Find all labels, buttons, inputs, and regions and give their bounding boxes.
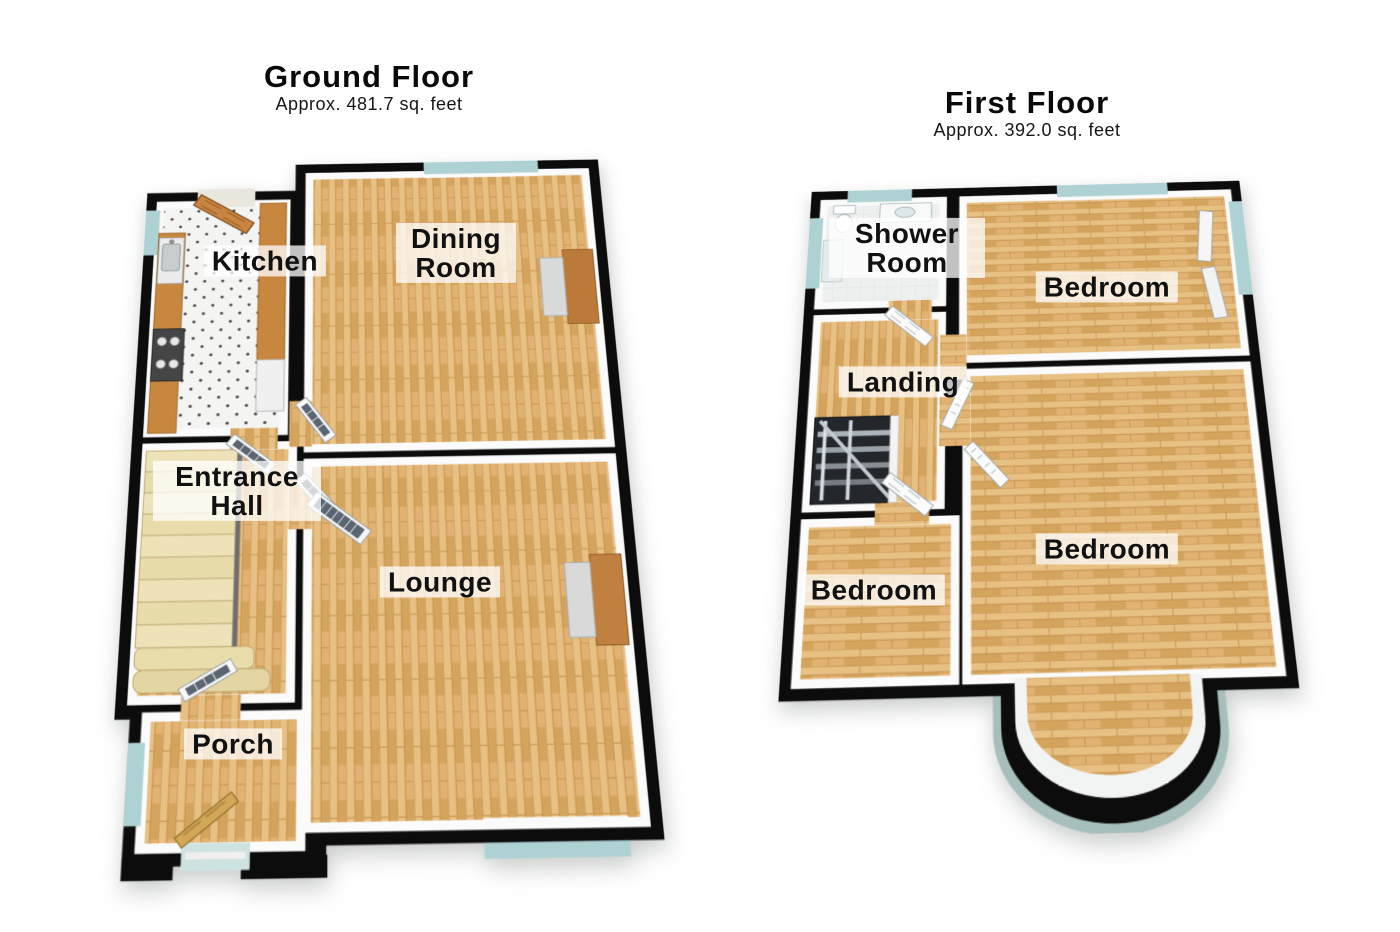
first-floor-subtitle: Approx. 392.0 sq. feet: [933, 120, 1120, 141]
room-label-landing: Landing: [839, 366, 967, 397]
room-label-bedroom-3: Bedroom: [1036, 533, 1178, 564]
room-label-lounge: Lounge: [380, 566, 500, 597]
room-label-porch: Porch: [184, 728, 282, 759]
dining-window: [424, 161, 539, 175]
room-label-shower-room: Shower Room: [829, 218, 985, 278]
floorplan-page: Ground Floor Approx. 481.7 sq. feet: [0, 0, 1400, 932]
ground-floor-plan-svg: [104, 159, 668, 885]
room-label-bedroom-1: Bedroom: [1036, 271, 1178, 302]
lounge-window: [484, 840, 631, 859]
room-label-entrance-hall: Entrance Hall: [153, 461, 321, 521]
shower-room-window: [847, 189, 912, 202]
first-floor-title: First Floor: [945, 85, 1109, 121]
kitchen-appliance: [256, 359, 285, 411]
room-label-bedroom-2: Bedroom: [803, 574, 945, 605]
room-label-dining-room: Dining Room: [396, 223, 516, 283]
ground-floor-plan: [104, 159, 668, 885]
room-label-kitchen: Kitchen: [204, 245, 326, 276]
stairwell: [810, 416, 899, 505]
kitchen-counter: [257, 203, 287, 360]
ground-floor-subtitle: Approx. 481.7 sq. feet: [275, 94, 462, 115]
bedroom-3-floor: [966, 365, 1281, 679]
ground-floor-title: Ground Floor: [264, 59, 474, 95]
lounge-floor: [306, 457, 646, 827]
stove-icon: [150, 329, 184, 382]
